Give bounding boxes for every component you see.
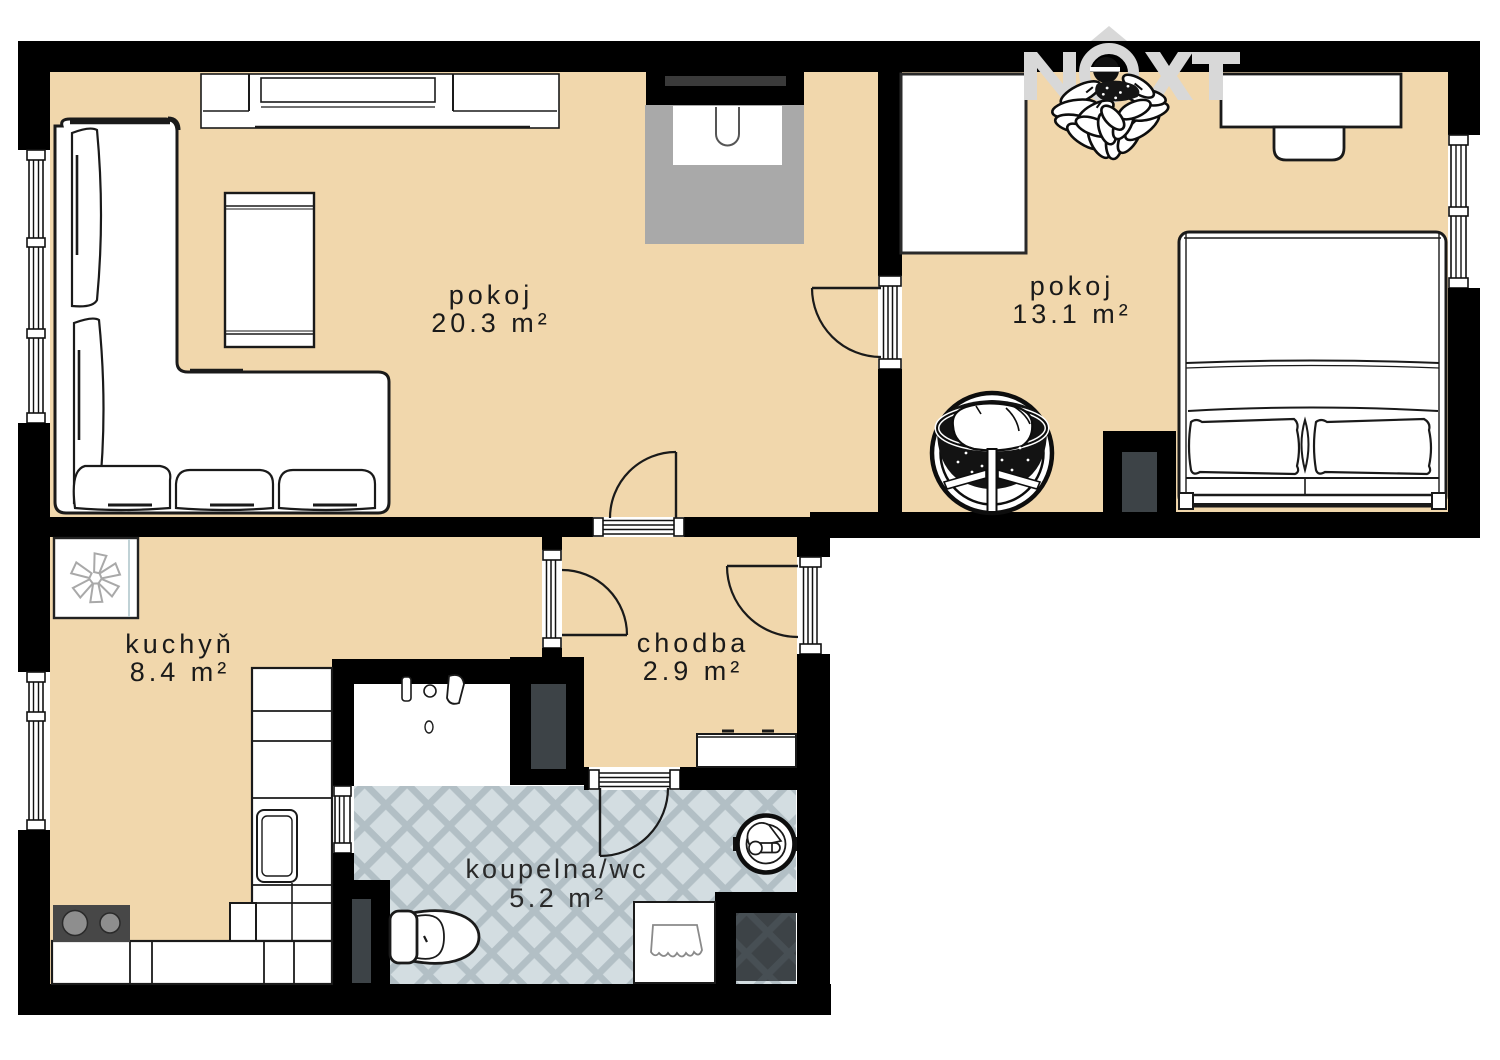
svg-text:chodba: chodba [637, 628, 750, 658]
svg-text:koupelna/wc: koupelna/wc [465, 854, 648, 884]
svg-text:pokoj: pokoj [449, 280, 534, 310]
svg-text:8.4 m²: 8.4 m² [130, 657, 231, 687]
svg-text:13.1 m²: 13.1 m² [1012, 299, 1132, 329]
svg-text:2.9 m²: 2.9 m² [643, 656, 744, 686]
svg-text:kuchyň: kuchyň [125, 629, 235, 659]
svg-text:20.3 m²: 20.3 m² [431, 308, 551, 338]
svg-text:pokoj: pokoj [1030, 271, 1115, 301]
svg-text:5.2 m²: 5.2 m² [509, 883, 607, 913]
